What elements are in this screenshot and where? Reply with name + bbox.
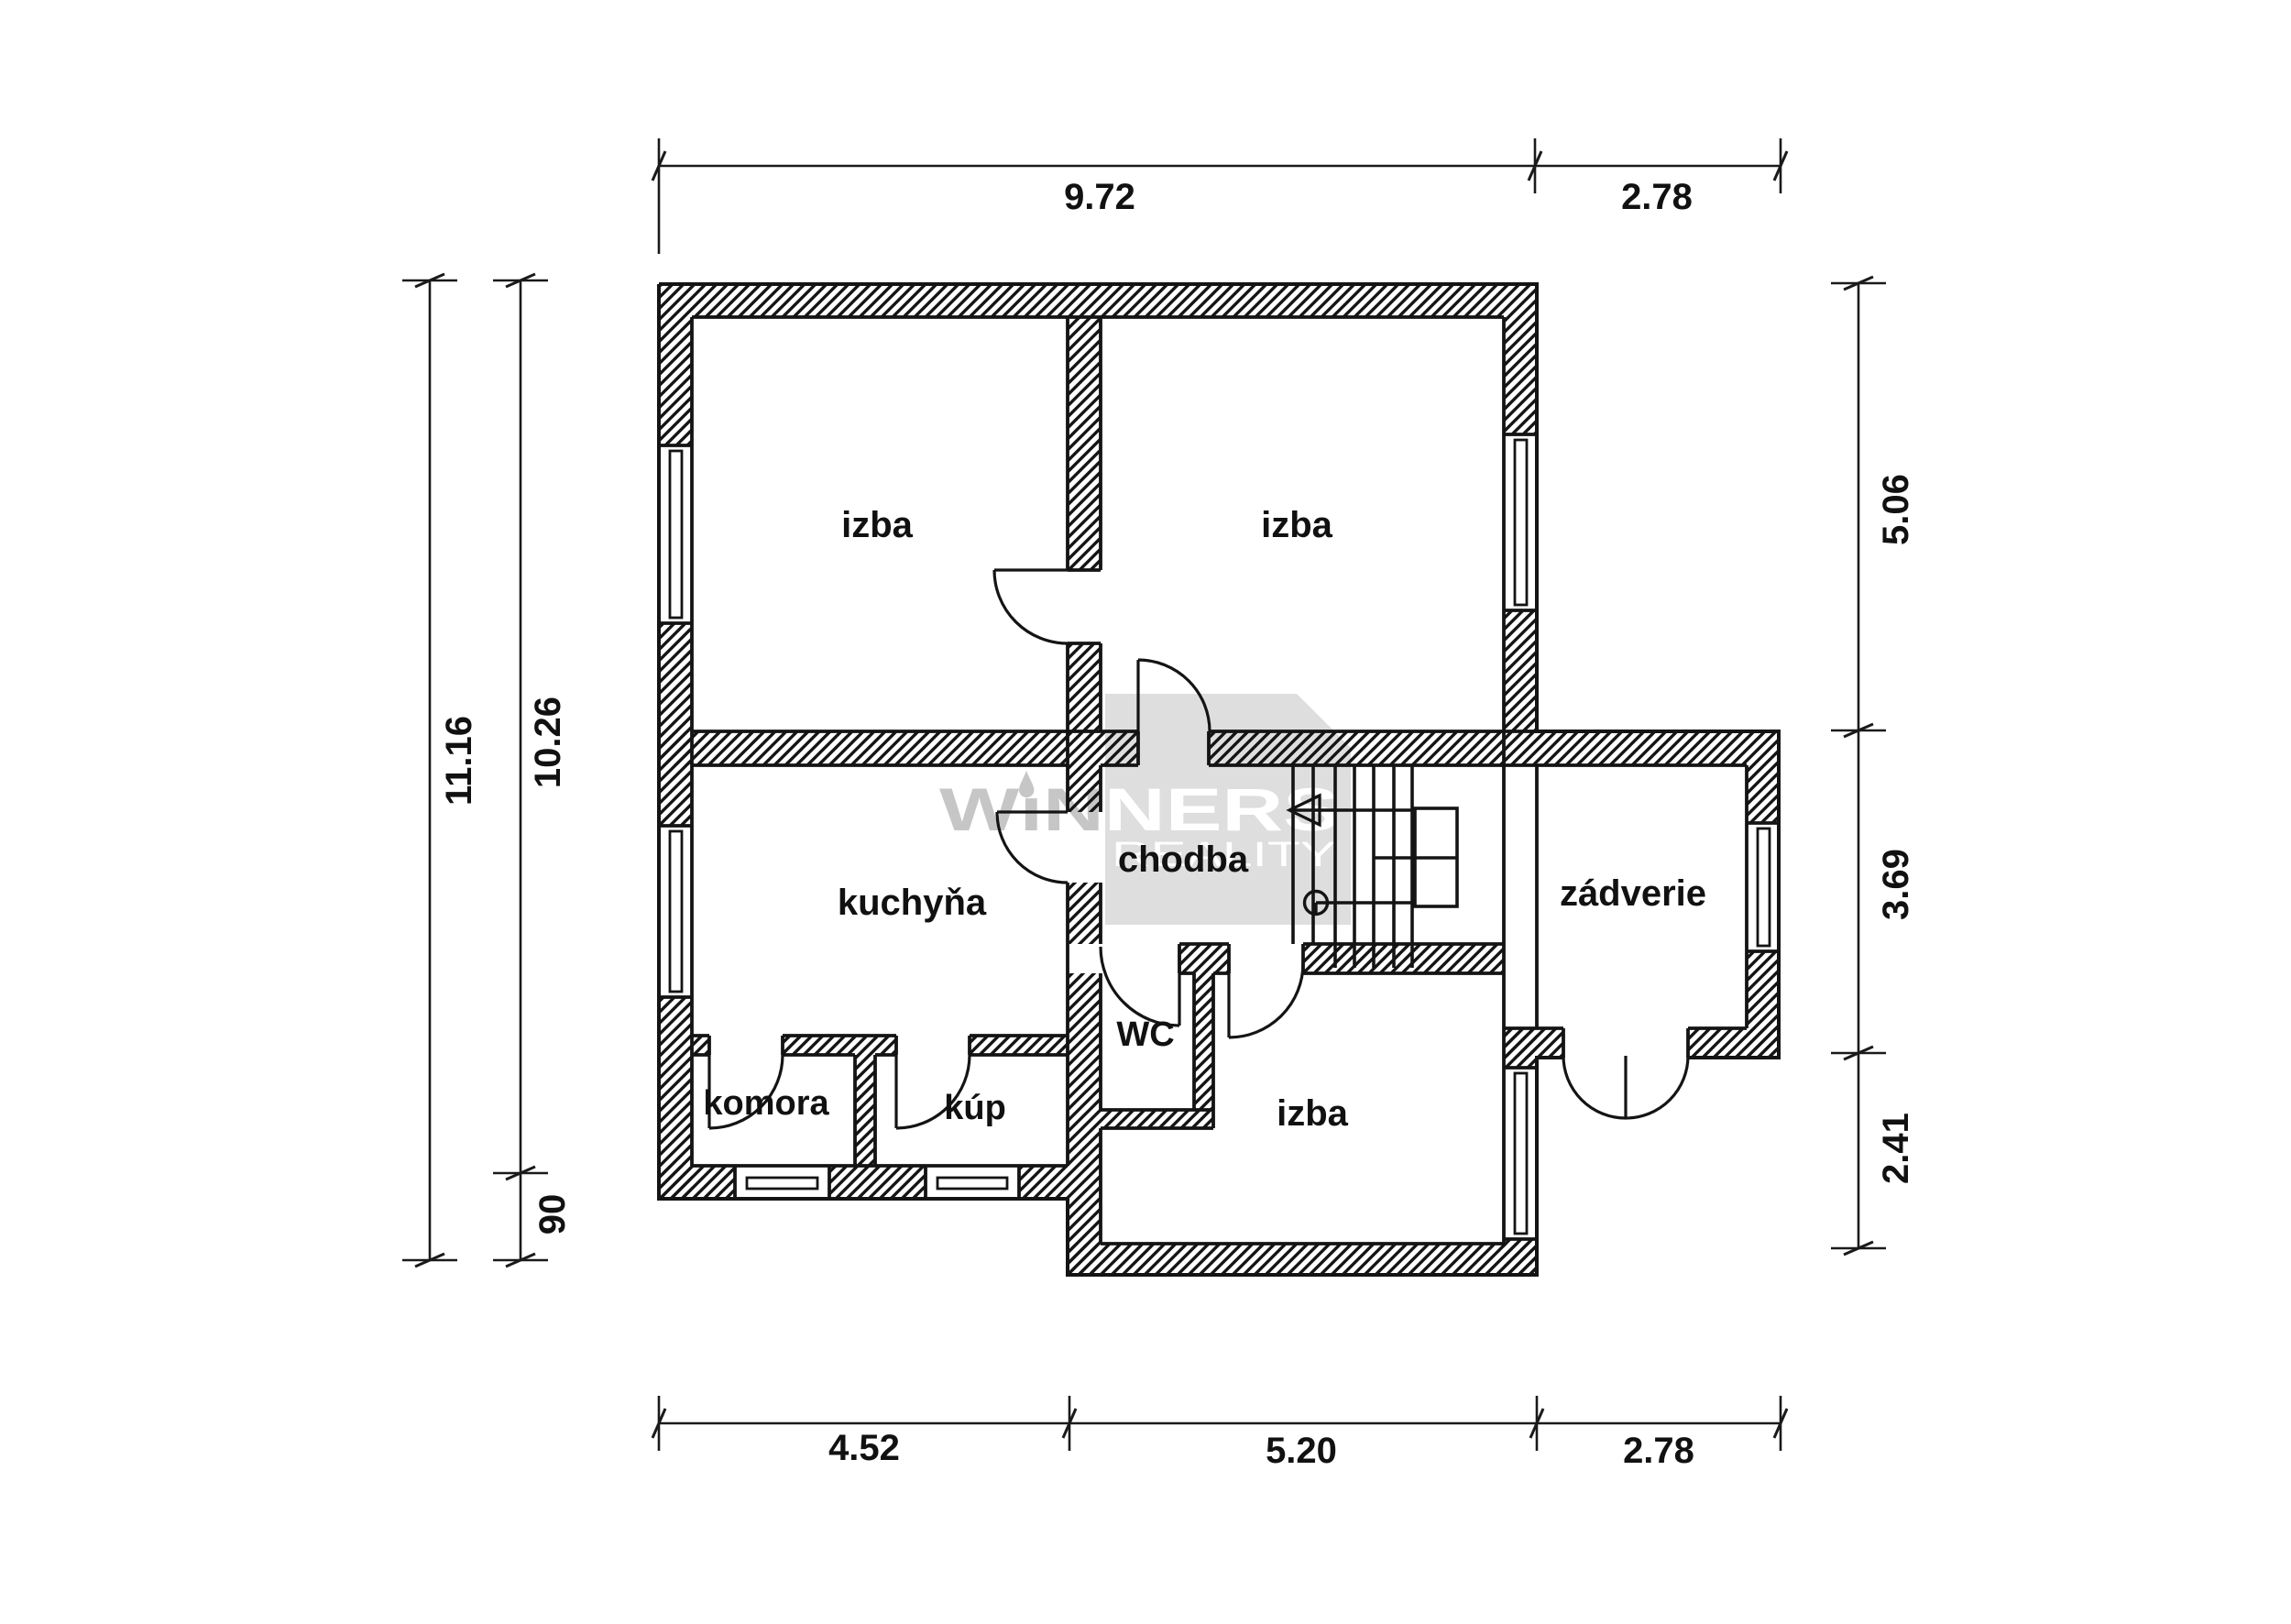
svg-text:chodba: chodba <box>1118 839 1249 880</box>
svg-text:5.06: 5.06 <box>1876 474 1916 545</box>
svg-text:izba: izba <box>1261 505 1333 545</box>
svg-text:3.69: 3.69 <box>1876 849 1916 920</box>
svg-text:2.78: 2.78 <box>1623 1431 1694 1471</box>
svg-text:4.52: 4.52 <box>828 1428 900 1468</box>
svg-text:90: 90 <box>532 1194 573 1235</box>
svg-text:kúp: kúp <box>944 1089 1006 1127</box>
svg-text:11.16: 11.16 <box>439 716 479 806</box>
svg-text:9.72: 9.72 <box>1064 177 1135 217</box>
svg-text:komora: komora <box>703 1084 829 1123</box>
svg-text:10.26: 10.26 <box>528 697 568 788</box>
svg-text:izba: izba <box>1277 1093 1349 1134</box>
svg-text:izba: izba <box>841 505 914 545</box>
svg-text:2.41: 2.41 <box>1876 1113 1916 1184</box>
svg-text:kuchyňa: kuchyňa <box>838 883 987 923</box>
svg-text:2.78: 2.78 <box>1621 177 1693 217</box>
svg-text:WC: WC <box>1116 1015 1174 1054</box>
svg-text:zádverie: zádverie <box>1560 873 1706 914</box>
svg-text:5.20: 5.20 <box>1266 1431 1337 1471</box>
